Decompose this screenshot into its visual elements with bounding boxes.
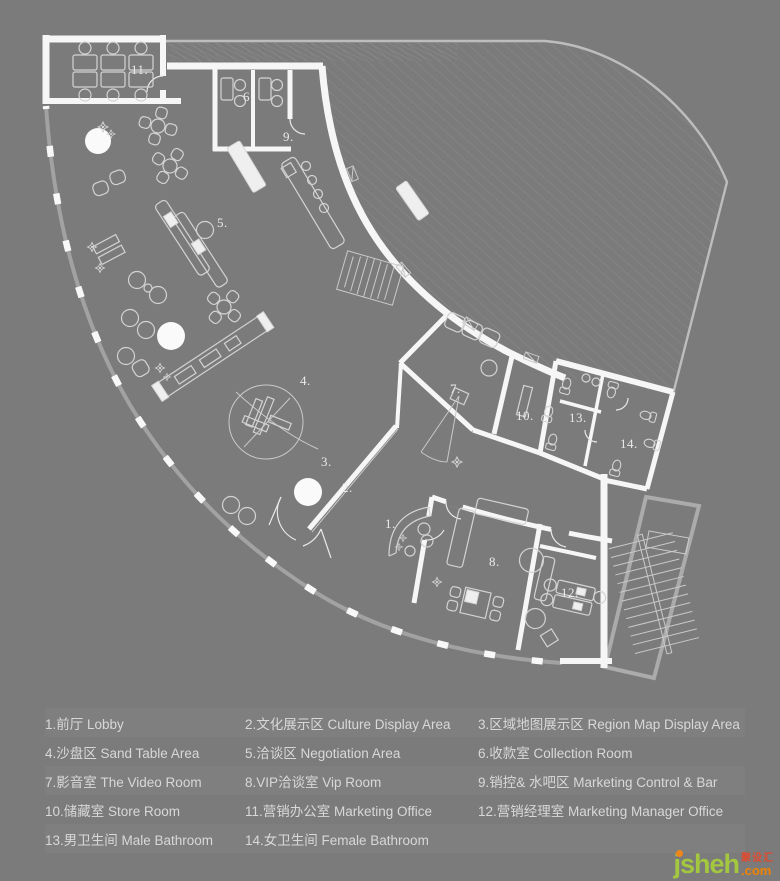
legend-item-3: 3.区域地图展示区 Region Map Display Area: [478, 713, 745, 733]
negotiation-counters: [154, 199, 229, 289]
table-4-chairs: [197, 280, 251, 334]
legend: 1.前厅 Lobby 2.文化展示区 Culture Display Area …: [45, 708, 745, 853]
table-4-chairs: [144, 140, 196, 192]
stairwell: [605, 497, 701, 678]
legend-item-1: 1.前厅 Lobby: [45, 713, 245, 733]
room-label-5: 5.: [217, 215, 228, 230]
room-label-6: 6.: [243, 89, 254, 104]
watermark-right: 聚设汇 .com: [741, 854, 774, 877]
bar-area: [280, 156, 345, 250]
watermark-logo: jsheh 聚设汇 .com: [673, 851, 774, 878]
legend-row: 10.储藏室 Store Room 11.营销办公室 Marketing Off…: [45, 795, 745, 824]
room-label-9: 9.: [283, 129, 294, 144]
legend-item-4: 4.沙盘区 Sand Table Area: [45, 742, 245, 762]
floor-plan: 1. 2. 3. 4. 5. 6. 7. 8. 9. 10. 11. 12. 1…: [0, 0, 780, 705]
room-label-3: 3.: [321, 454, 332, 469]
display-arc: [236, 392, 318, 449]
watermark-tld: .com: [741, 864, 774, 877]
room-label-10: 10.: [516, 408, 534, 423]
room-label-14: 14.: [620, 436, 638, 451]
legend-item-11: 11.营销办公室 Marketing Office: [245, 800, 478, 820]
table-4-chairs: [135, 103, 182, 150]
columns: [85, 128, 322, 506]
legend-item-14: 14.女卫生间 Female Bathroom: [245, 829, 478, 849]
room-label-1: 1.: [385, 516, 396, 531]
legend-item-6: 6.收款室 Collection Room: [478, 742, 745, 762]
room-label-13: 13.: [569, 410, 587, 425]
legend-item-2: 2.文化展示区 Culture Display Area: [245, 713, 478, 733]
legend-row: 1.前厅 Lobby 2.文化展示区 Culture Display Area …: [45, 708, 745, 737]
legend-item-5: 5.洽谈区 Negotiation Area: [245, 742, 478, 762]
legend-item-10: 10.储藏室 Store Room: [45, 800, 245, 820]
legend-item-9: 9.销控& 水吧区 Marketing Control & Bar: [478, 771, 745, 791]
legend-item-7: 7.影音室 The Video Room: [45, 771, 245, 791]
site-hatch-band: [170, 43, 458, 61]
room-label-8: 8.: [489, 554, 500, 569]
legend-row: 4.沙盘区 Sand Table Area 5.洽谈区 Negotiation …: [45, 737, 745, 766]
watermark-name: jsheh: [673, 851, 739, 878]
room-label-4: 4.: [300, 373, 311, 388]
floor-plan-page: 1. 2. 3. 4. 5. 6. 7. 8. 9. 10. 11. 12. 1…: [0, 0, 780, 881]
legend-item-13: 13.男卫生间 Male Bathroom: [45, 829, 245, 849]
room-label-7: 7.: [450, 381, 461, 396]
legend-item-8: 8.VIP洽谈室 Vip Room: [245, 771, 478, 791]
sand-table: [229, 385, 303, 459]
room-label-2: 2.: [342, 480, 353, 495]
room-label-12: 12.: [561, 585, 579, 600]
legend-row: 13.男卫生间 Male Bathroom 14.女卫生间 Female Bat…: [45, 824, 745, 853]
legend-row: 7.影音室 The Video Room 8.VIP洽谈室 Vip Room 9…: [45, 766, 745, 795]
room-label-11: 11.: [131, 62, 148, 77]
legend-item-12: 12.营销经理室 Marketing Manager Office: [478, 800, 745, 820]
